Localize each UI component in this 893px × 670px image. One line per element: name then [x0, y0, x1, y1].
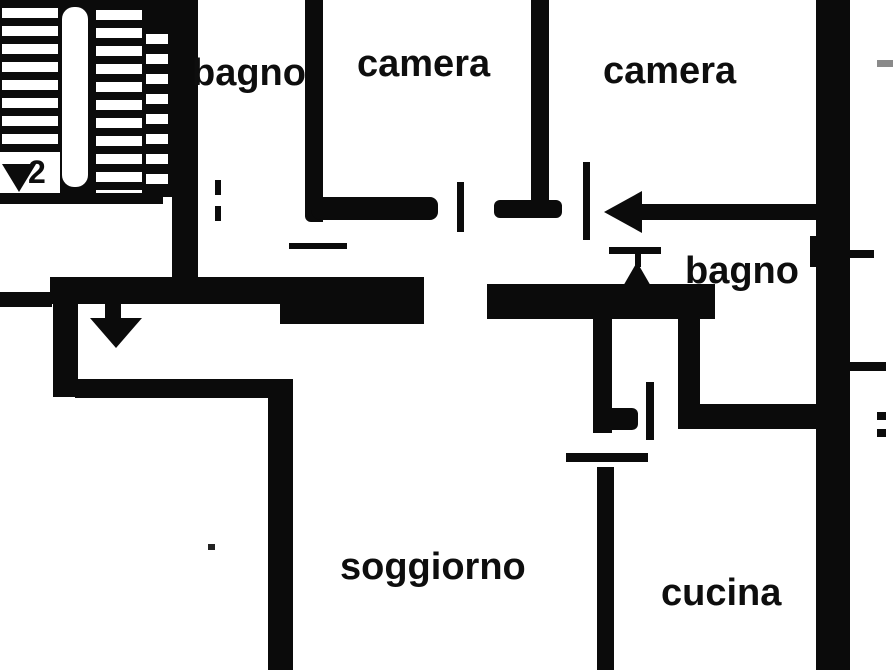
staircase: 2 — [0, 0, 197, 197]
wall-stairwell-right — [172, 0, 198, 282]
door-mark-camera1 — [457, 182, 464, 232]
door-mark-bagno1 — [215, 180, 221, 232]
wall-cucina-left — [597, 467, 614, 670]
stair-rail — [62, 7, 88, 187]
door-mark-disimpegno — [646, 382, 654, 440]
wall-camera-divider-base — [494, 200, 562, 218]
door-sill-cucina — [566, 453, 648, 462]
room-label-bagno-right: bagno — [685, 252, 799, 290]
stair-number: 2 — [28, 156, 46, 188]
wall-disimpegno-foot — [608, 408, 638, 430]
door-sill-hallway — [289, 243, 347, 249]
wall-camera1-bottom — [311, 197, 438, 220]
wall-notch-right — [810, 236, 822, 267]
wall-left-stub — [0, 292, 52, 307]
floor-plan: 2 bagno camera camera bagno soggiorno cu — [0, 0, 893, 670]
room-label-camera-left: camera — [357, 45, 490, 83]
wall-soggiorno-top — [75, 379, 293, 398]
wall-soggiorno-left — [268, 379, 293, 670]
hall-down-arrow-icon — [90, 318, 142, 348]
wall-outer-right — [816, 0, 850, 670]
hall-arrow-stem — [105, 283, 121, 321]
window-mark-right-2 — [848, 362, 886, 371]
entrance-arrow-icon — [604, 191, 642, 233]
wall-corridor-right — [487, 284, 715, 319]
room-label-bagno-top: bagno — [192, 54, 306, 92]
wall-corridor-left-thick — [280, 300, 424, 324]
wall-bagno2-bottom — [678, 404, 818, 429]
room-label-cucina: cucina — [661, 574, 781, 612]
entrance-arrow-tail — [638, 204, 818, 220]
wall-camera1-left — [305, 0, 323, 222]
wall-landing-top — [0, 193, 163, 204]
window-mark-right-1 — [848, 250, 874, 258]
stair-treads-far-right — [146, 24, 168, 194]
room-label-camera-right: camera — [603, 52, 736, 90]
wall-camera-divider — [531, 0, 549, 210]
door-mark-camera2 — [583, 162, 590, 240]
room-label-soggiorno: soggiorno — [340, 548, 526, 586]
door-flag-bagno2-icon — [622, 262, 652, 288]
wall-bagno2-left — [678, 316, 700, 411]
mark-top-right — [877, 60, 893, 67]
stair-treads-right — [96, 2, 142, 194]
window-dashes-right — [877, 412, 886, 438]
plan-speck — [208, 544, 215, 550]
